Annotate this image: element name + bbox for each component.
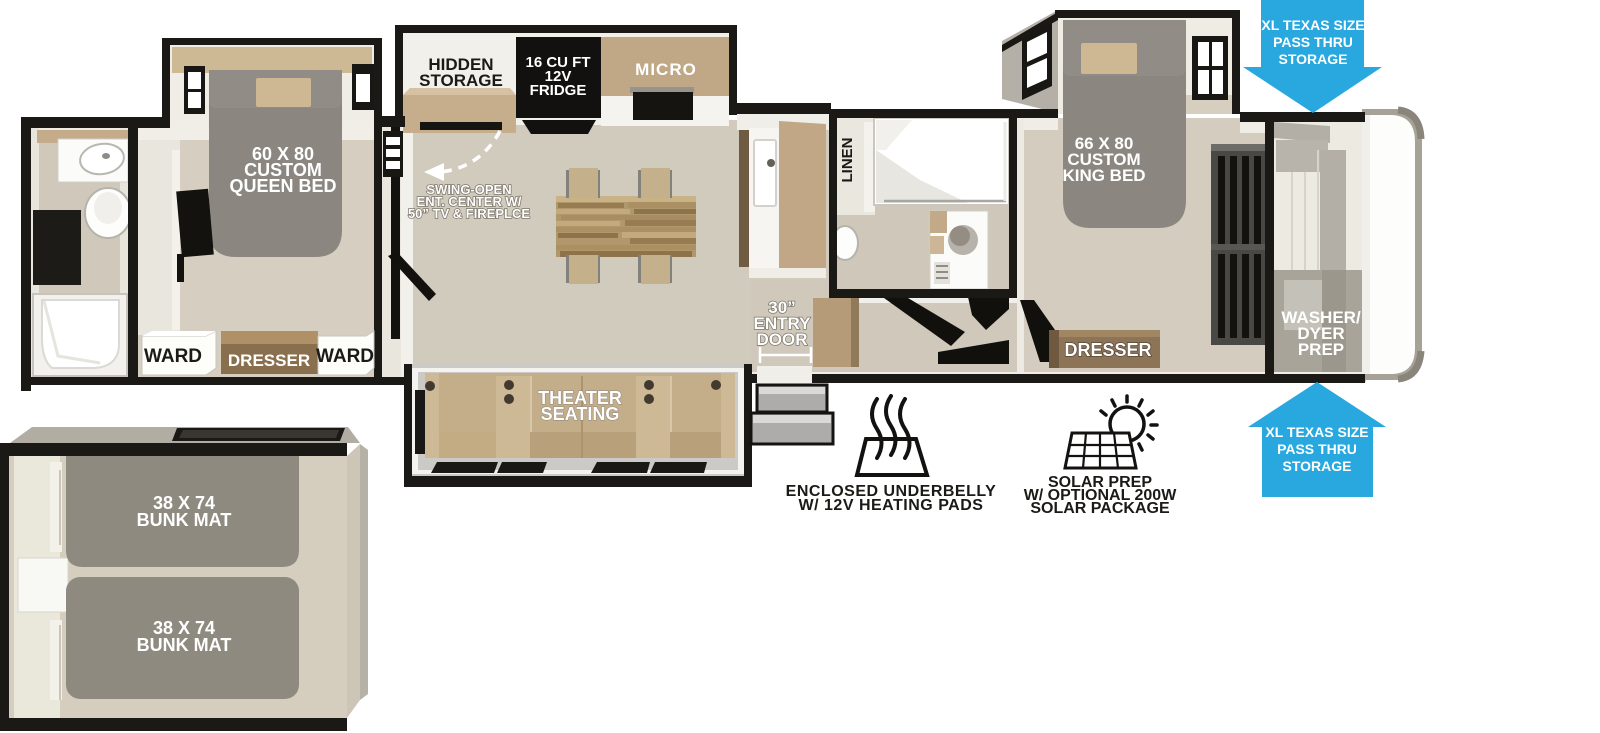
svg-text:KING BED: KING BED — [1062, 166, 1145, 185]
svg-text:PREP: PREP — [1298, 340, 1344, 359]
svg-text:WARD: WARD — [316, 346, 374, 367]
svg-text:STORAGE: STORAGE — [1283, 458, 1352, 474]
svg-text:XL TEXAS SIZE: XL TEXAS SIZE — [1261, 17, 1364, 33]
svg-text:SEATING: SEATING — [541, 404, 620, 424]
svg-text:PASS THRU: PASS THRU — [1277, 441, 1357, 457]
svg-text:STORAGE: STORAGE — [419, 71, 503, 90]
svg-text:XL TEXAS SIZE: XL TEXAS SIZE — [1265, 424, 1368, 440]
svg-text:SOLAR PACKAGE: SOLAR PACKAGE — [1030, 500, 1170, 517]
svg-text:DRESSER: DRESSER — [1064, 340, 1151, 360]
svg-text:50” TV & FIREPLCE: 50” TV & FIREPLCE — [408, 206, 530, 221]
svg-text:WARD: WARD — [144, 346, 202, 367]
svg-text:DRESSER: DRESSER — [228, 351, 310, 370]
svg-text:QUEEN BED: QUEEN BED — [229, 176, 336, 196]
svg-text:W/ 12V HEATING PADS: W/ 12V HEATING PADS — [799, 497, 984, 514]
svg-text:STORAGE: STORAGE — [1279, 51, 1348, 67]
svg-text:FRIDGE: FRIDGE — [530, 82, 587, 99]
svg-text:MICRO: MICRO — [635, 60, 697, 79]
svg-text:LINEN: LINEN — [839, 138, 856, 183]
svg-text:BUNK MAT: BUNK MAT — [137, 635, 232, 655]
svg-text:PASS THRU: PASS THRU — [1273, 34, 1353, 50]
svg-text:BUNK MAT: BUNK MAT — [137, 510, 232, 530]
svg-text:DOOR: DOOR — [757, 330, 808, 349]
